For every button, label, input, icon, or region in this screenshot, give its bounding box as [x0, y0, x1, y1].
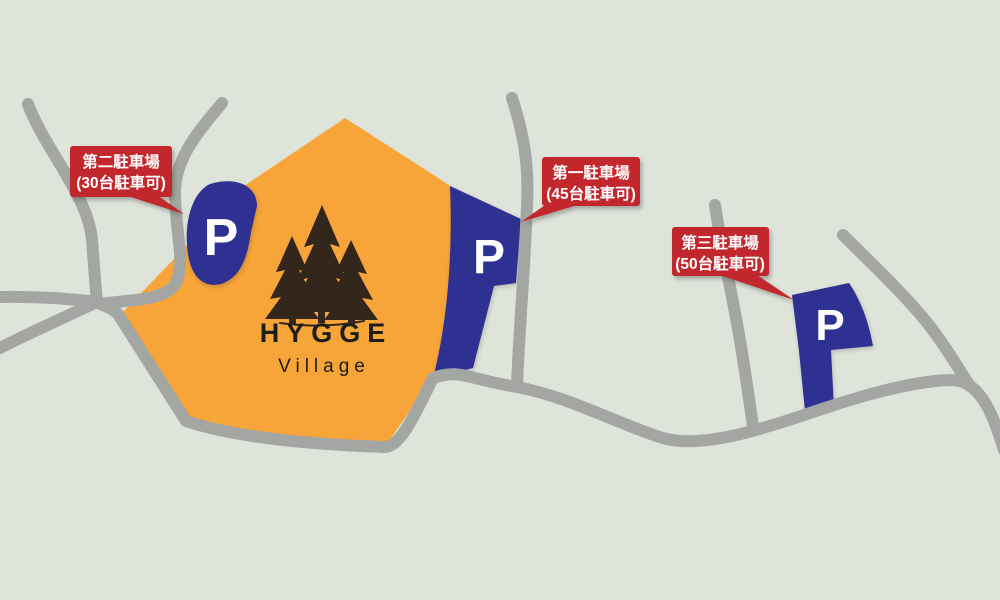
parking-symbol-second: P — [204, 209, 239, 267]
label-third-capacity: (50台駐車可) — [675, 254, 765, 273]
logo-title: HYGGE — [260, 318, 393, 348]
label-first-capacity: (45台駐車可) — [546, 184, 636, 203]
parking-symbol-third: P — [815, 301, 844, 350]
label-second-name: 第二駐車場 — [82, 152, 160, 171]
parking-symbol-first: P — [473, 231, 505, 284]
parking-map: P P P HYGGE Village 第二駐車場 (30台駐車可) 第一駐車場… — [0, 0, 1000, 600]
label-second-capacity: (30台駐車可) — [76, 173, 166, 192]
logo-subtitle: Village — [278, 356, 370, 377]
road-west-exit-upper — [0, 297, 97, 302]
label-first-name: 第一駐車場 — [552, 163, 630, 182]
label-third-name: 第三駐車場 — [681, 233, 759, 252]
